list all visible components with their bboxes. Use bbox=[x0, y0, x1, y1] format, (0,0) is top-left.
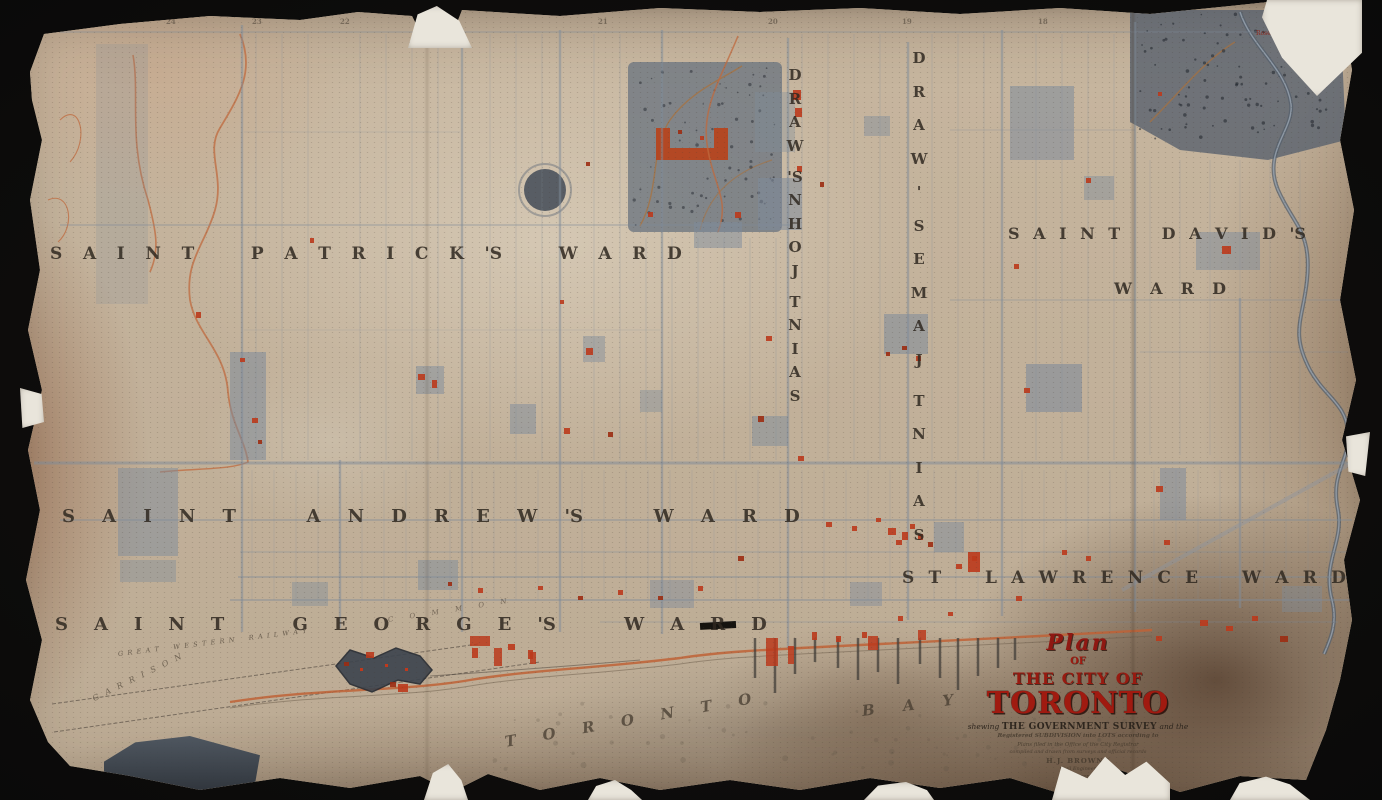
lot-number: 25 bbox=[80, 17, 90, 26]
map-paper: SAINTPATRICK'SWARD SAINTANDREW'SWARD SAI… bbox=[0, 0, 1382, 800]
photo-background: SAINTPATRICK'SWARD SAINTANDREW'SWARD SAI… bbox=[0, 0, 1382, 800]
cartouche-toronto: TORONTO bbox=[958, 686, 1198, 721]
and-the-words: and the bbox=[1160, 722, 1189, 731]
ward-label-saint-patricks: SAINTPATRICK'SWARD bbox=[50, 244, 682, 264]
ward-label-saint-andrews: SAINTANDREW'SWARD bbox=[62, 506, 800, 527]
cartouche-of: OF bbox=[958, 656, 1198, 667]
lot-number: 19 bbox=[902, 17, 912, 26]
lot-number: 24 bbox=[166, 17, 176, 26]
lot-number: 20 bbox=[768, 17, 778, 26]
college-circle-pond bbox=[519, 164, 571, 216]
lot-number: 23 bbox=[252, 17, 262, 26]
ward-label-saint-james: DRAW' SEMAJTNIAS bbox=[906, 42, 932, 552]
lot-number: 18 bbox=[1038, 17, 1048, 26]
torn-edge-patch bbox=[1346, 432, 1370, 476]
shewing-word: shewing bbox=[968, 722, 1000, 731]
torn-edge-patch bbox=[20, 388, 44, 428]
title-cartouche: Plan OF THE CITY OF TORONTO shewing THE … bbox=[958, 630, 1198, 782]
ward-label-saint-johns: DRAW'SNHOJTNIAS bbox=[782, 64, 808, 408]
fine-print-line: Registered SUBDIVISION into LOTS accordi… bbox=[958, 732, 1198, 741]
wharves bbox=[470, 630, 1015, 693]
fine-print-line: Plans filed in the Office of the City Re… bbox=[958, 741, 1198, 749]
ward-label-saint-davids: SAINTDAVID'S bbox=[1008, 224, 1306, 243]
lot-number: 22 bbox=[340, 17, 350, 26]
fine-print-line: compiled and drawn from surveys and offi… bbox=[958, 749, 1198, 757]
cartouche-plan: Plan bbox=[958, 630, 1198, 656]
ward-label-st-lawrence: STLAWRENCEWARD bbox=[902, 568, 1346, 588]
fine-print-line: H.J. BROWNE bbox=[958, 756, 1198, 766]
ward-label-saint-davids-ward: WARD bbox=[1114, 279, 1226, 298]
cartouche-shewing-line: shewing THE GOVERNMENT SURVEY and the bbox=[958, 722, 1198, 732]
survey-words: THE GOVERNMENT SURVEY bbox=[1002, 722, 1157, 732]
fine-print-line: Civil Engineer bbox=[958, 766, 1198, 774]
lot-number: 21 bbox=[598, 17, 608, 26]
